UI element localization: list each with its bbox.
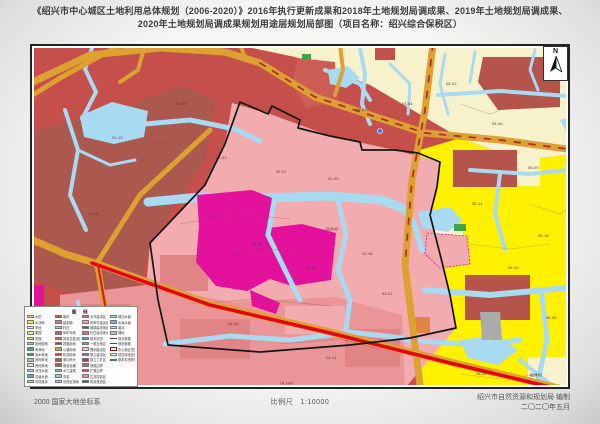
legend-label: 湖泊水面 <box>118 314 131 319</box>
legend-label: 规划道路 <box>118 341 131 346</box>
legend-swatch <box>55 337 62 341</box>
legend-swatch <box>27 337 34 341</box>
legend-swatch <box>27 369 34 373</box>
legend-label: 风景旅游区 <box>90 379 106 384</box>
legend-swatch <box>55 320 62 324</box>
legend-swatch <box>55 358 62 362</box>
region-green-patch <box>454 224 466 231</box>
legend-label: 港口码头 <box>63 357 76 362</box>
legend-swatch <box>27 342 34 346</box>
legend-swatch <box>82 363 89 367</box>
legend-swatch <box>82 315 89 319</box>
legend-label: 水库水面 <box>118 320 131 325</box>
legend-swatch <box>27 380 34 384</box>
legend-swatch <box>27 358 34 362</box>
legend-swatch <box>27 315 34 319</box>
legend-label: 公路用地 <box>63 347 76 352</box>
legend-label: 有林地 <box>35 347 45 352</box>
legend-label: 水浇地 <box>35 320 45 325</box>
legend-label: 茶园 <box>35 336 41 341</box>
legend-label: 允许建设区 <box>90 314 106 319</box>
legend-label: 禁止建设区 <box>90 352 106 357</box>
legend-box: 图 例 水田水浇地旱地果园茶园其他园地有林地灌木林地其他林地其他草地河流水面坑塘… <box>24 306 138 387</box>
legend-label: 基本农田 <box>90 336 103 341</box>
legend-swatch <box>82 369 89 373</box>
north-arrow-icon <box>550 56 562 74</box>
legend-item: 风景旅游区 <box>82 379 108 384</box>
legend-swatch <box>82 347 89 351</box>
legend-swatch <box>55 342 62 346</box>
credit-org: 绍兴市自然资源和规划局 编制 <box>477 394 570 401</box>
region-gray-patch <box>480 312 502 340</box>
page: 《绍兴市中心城区土地利用总体规划（2006-2020）》2016年执行更新成果和… <box>0 0 600 424</box>
legend-swatch <box>55 369 62 373</box>
legend-swatch <box>27 331 34 335</box>
legend-item: 设施农用地 <box>55 379 81 384</box>
legend-label: 铁路用地 <box>63 341 76 346</box>
legend-label: 生态控制区 <box>90 374 106 379</box>
legend-label: 城市 <box>63 314 69 319</box>
legend-label: 管道运输 <box>63 363 76 368</box>
legend-label: 坑塘水面 <box>35 374 48 379</box>
map-title-line1: 《绍兴市中心城区土地利用总体规划（2006-2020）》2016年执行更新成果和… <box>0 5 600 18</box>
legend-label: 风景名胜设施 <box>63 336 81 341</box>
legend-swatch <box>55 315 62 319</box>
legend-label: 裸地 <box>118 330 124 335</box>
legend-label: 水田 <box>35 314 41 319</box>
legend-item: 基本农田界线 <box>110 357 136 362</box>
legend-swatch <box>55 347 62 351</box>
legend-label: 项目用地范围 <box>118 352 136 357</box>
map-title: 《绍兴市中心城区土地利用总体规划（2006-2020）》2016年执行更新成果和… <box>0 5 600 31</box>
credit-block: 绍兴市自然资源和规划局 编制 二〇二〇年五月 <box>477 393 570 413</box>
legend-swatch <box>82 326 89 330</box>
legend-swatch <box>82 320 89 324</box>
region-red-patch <box>375 48 395 60</box>
legend-swatch <box>55 363 62 367</box>
legend-label: 现状铁路 <box>118 336 131 341</box>
legend-label: 其他园地 <box>35 341 48 346</box>
poi-dot <box>378 129 383 134</box>
legend-swatch <box>27 326 34 330</box>
legend-label: 规模边界 <box>90 363 103 368</box>
legend-swatch <box>27 353 34 357</box>
legend-swatch <box>27 374 34 378</box>
legend-label: 村庄 <box>63 325 69 330</box>
legend-columns: 水田水浇地旱地果园茶园其他园地有林地灌木林地其他林地其他草地河流水面坑塘水面内陆… <box>27 314 135 384</box>
legend-swatch <box>110 326 117 330</box>
legend-label: 中心城区范围 <box>118 347 136 352</box>
legend-column: 城市建制镇村庄采矿用地风景名胜设施铁路用地公路用地机场用地港口码头管道运输水工建… <box>55 314 81 384</box>
legend-swatch <box>27 363 34 367</box>
legend-swatch <box>110 359 117 360</box>
legend-swatch <box>27 347 34 351</box>
north-label: N <box>553 47 558 56</box>
scale-label: 比例尺 <box>271 399 294 406</box>
legend-swatch <box>55 326 62 330</box>
legend-label: 村庄建设用地 <box>90 330 108 335</box>
legend-swatch <box>82 374 89 378</box>
legend-column: 水田水浇地旱地果园茶园其他园地有林地灌木林地其他林地其他草地河流水面坑塘水面内陆… <box>27 314 53 384</box>
region-green-patch <box>302 54 311 60</box>
legend-item: 内陆滩涂 <box>27 379 53 384</box>
legend-swatch <box>82 337 89 341</box>
legend-column: 湖泊水面水库水面滩涂裸地现状铁路规划道路中心城区范围项目用地范围基本农田界线 <box>110 314 136 384</box>
legend-swatch <box>110 320 117 324</box>
legend-label: 果园 <box>35 330 41 335</box>
legend-label: 其他草地 <box>35 363 48 368</box>
scale-value: 1:10000 <box>301 399 330 406</box>
legend-label: 沟渠 <box>63 374 69 379</box>
legend-label: 水工建筑 <box>63 368 76 373</box>
legend-label: 河流水面 <box>35 368 48 373</box>
legend-label: 采矿用地 <box>63 330 76 335</box>
legend-title: 图 例 <box>57 308 106 310</box>
legend-label: 有条件建设区 <box>90 320 108 325</box>
legend-swatch <box>110 347 117 351</box>
legend-label: 一般农地区 <box>90 341 106 346</box>
legend-label: 限制建设区 <box>90 347 106 352</box>
legend-swatch <box>27 320 34 324</box>
region-darkred-block <box>453 150 517 187</box>
legend-swatch <box>110 353 117 357</box>
legend-label: 滩涂 <box>118 325 124 330</box>
legend-label: 城镇建设用地 <box>90 325 108 330</box>
legend-label: 内陆滩涂 <box>35 379 48 384</box>
legend-swatch <box>110 343 117 344</box>
legend-column: 允许建设区有条件建设区城镇建设用地村庄建设用地基本农田一般农地区限制建设区禁止建… <box>82 314 108 384</box>
legend-label: 灌木林地 <box>35 352 48 357</box>
legend-label: 扩展边界 <box>90 368 103 373</box>
legend-swatch <box>82 353 89 357</box>
legend-label: 独立工矿区 <box>90 357 106 362</box>
legend-label: 旱地 <box>35 325 41 330</box>
legend-label: 设施农用地 <box>63 379 79 384</box>
legend-label: 基本农田界线 <box>118 357 136 362</box>
legend-label: 建制镇 <box>63 320 73 325</box>
legend-swatch <box>82 342 89 346</box>
north-arrow: N <box>543 46 568 81</box>
legend-swatch <box>55 380 62 384</box>
legend-swatch <box>110 338 117 339</box>
legend-swatch <box>55 374 62 378</box>
legend-swatch <box>82 380 89 384</box>
legend-swatch <box>110 315 117 319</box>
legend-swatch <box>110 331 117 335</box>
map-title-line2: 2020年土地规划局调成果规划用途层规划局部图（项目名称：绍兴综合保税区） <box>0 18 600 31</box>
credit-date: 二〇二〇年五月 <box>521 404 570 411</box>
legend-swatch <box>55 353 62 357</box>
legend-label: 机场用地 <box>63 352 76 357</box>
legend-swatch <box>55 331 62 335</box>
legend-swatch <box>82 331 89 335</box>
legend-label: 其他林地 <box>35 357 48 362</box>
legend-swatch <box>82 358 89 362</box>
